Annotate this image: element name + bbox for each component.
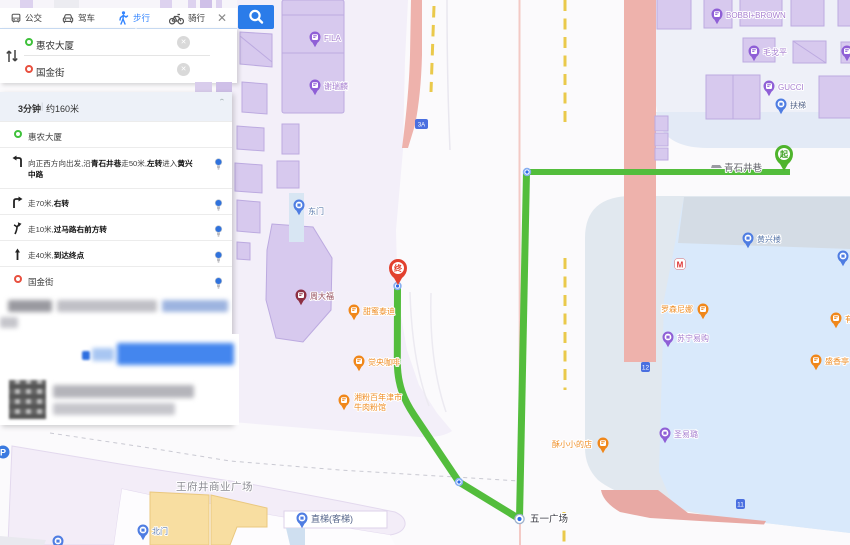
svg-text:3A: 3A bbox=[418, 123, 425, 129]
svg-text:黄兴楼: 黄兴楼 bbox=[757, 234, 781, 244]
svg-text:东门: 东门 bbox=[308, 206, 324, 216]
svg-text:甜蜜泰迪: 甜蜜泰迪 bbox=[363, 306, 395, 316]
svg-text:谢瑞麟: 谢瑞麟 bbox=[324, 81, 348, 91]
svg-text:苏宁易购: 苏宁易购 bbox=[677, 333, 709, 343]
svg-text:M: M bbox=[677, 261, 684, 270]
svg-text:盛香亭: 盛香亭 bbox=[825, 356, 849, 366]
svg-text:牛肉粉馆: 牛肉粉馆 bbox=[354, 402, 386, 412]
svg-text:青石井巷: 青石井巷 bbox=[724, 162, 763, 174]
svg-text:扶梯: 扶梯 bbox=[790, 100, 806, 110]
svg-text:11: 11 bbox=[737, 502, 744, 509]
svg-text:GUCCI: GUCCI bbox=[778, 83, 804, 92]
svg-text:五一广场: 五一广场 bbox=[530, 513, 568, 525]
svg-text:BOBBI+BROWN: BOBBI+BROWN bbox=[726, 11, 786, 20]
svg-text:直梯(客梯): 直梯(客梯) bbox=[311, 513, 353, 524]
svg-text:圣易璐: 圣易璐 bbox=[674, 429, 698, 439]
svg-text:FILA: FILA bbox=[324, 34, 342, 43]
svg-text:毛戈平: 毛戈平 bbox=[763, 47, 787, 57]
svg-text:罗森尼娜: 罗森尼娜 bbox=[661, 304, 693, 314]
svg-text:觉央咖啡: 觉央咖啡 bbox=[368, 357, 400, 367]
svg-text:酥小小的店: 酥小小的店 bbox=[552, 439, 592, 449]
svg-text:有: 有 bbox=[845, 314, 850, 324]
svg-text:起: 起 bbox=[779, 149, 789, 159]
svg-text:终: 终 bbox=[393, 263, 403, 273]
svg-text:湘粉百年津市: 湘粉百年津市 bbox=[354, 392, 402, 402]
svg-text:12: 12 bbox=[642, 365, 650, 372]
svg-text:周大福: 周大福 bbox=[310, 291, 334, 301]
